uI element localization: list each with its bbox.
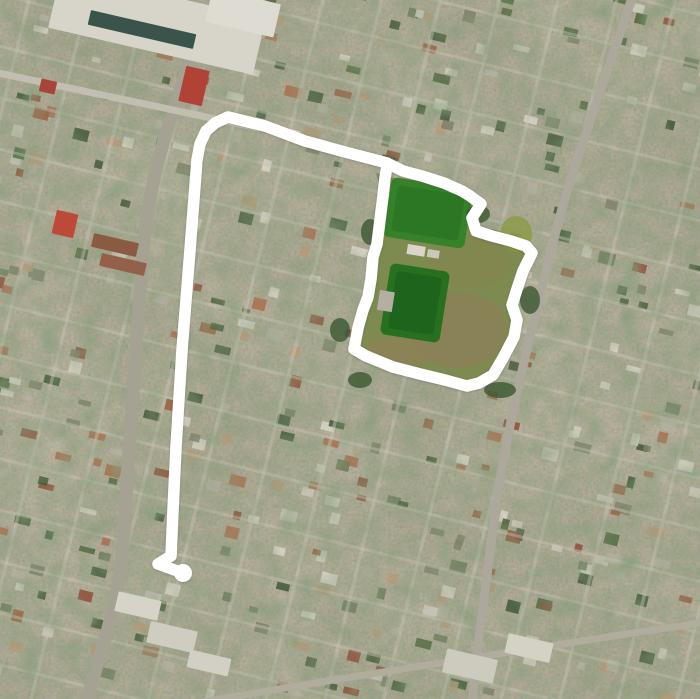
tree-cluster [348, 372, 372, 388]
route-end-marker [174, 564, 192, 582]
park-structure [377, 290, 395, 312]
map-viewport [0, 0, 700, 699]
sports-field-2-inner [388, 271, 443, 335]
satellite-map-canvas[interactable] [0, 0, 700, 699]
tree-cluster [330, 318, 350, 342]
tree-cluster [520, 286, 540, 314]
tree-cluster [484, 382, 516, 398]
